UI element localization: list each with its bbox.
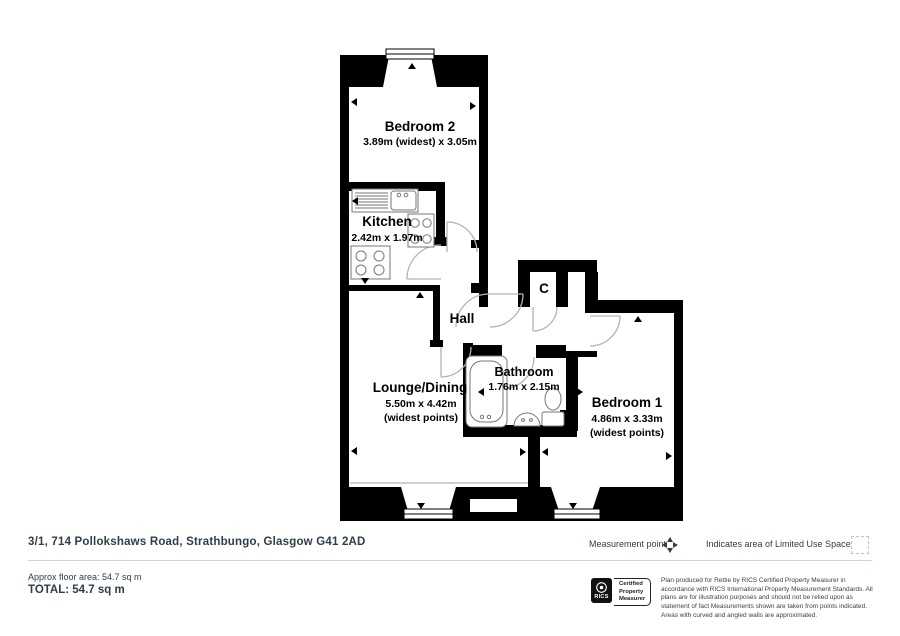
window-icon <box>404 509 453 519</box>
rics-certification-box: Certified Property Measurer <box>614 578 651 606</box>
rics-lion-icon <box>595 581 608 594</box>
limited-use-space-icon <box>851 536 869 554</box>
kitchen-counter-sink-icon <box>352 189 418 212</box>
room-label-hall: Hall <box>450 311 475 326</box>
approx-floor-area: Approx floor area: 54.7 sq m <box>28 572 142 582</box>
room-label-bedroom2: Bedroom 2 <box>385 119 456 134</box>
total-floor-area: TOTAL: 54.7 sq m <box>28 584 125 596</box>
room-dims-bathroom: 1.76m x 2.15m <box>488 381 559 393</box>
room-label-bedroom1: Bedroom 1 <box>592 395 663 410</box>
measurement-point-icon <box>661 536 679 554</box>
rics-brand-text: RICS <box>594 594 608 600</box>
room-label-kitchen: Kitchen <box>362 214 412 229</box>
legend-limited-use-label: Indicates area of Limited Use Space <box>706 539 851 549</box>
rics-logo: RICS Certified Property Measurer <box>591 578 651 606</box>
floorplan-page: Bedroom 2 3.89m (widest) x 3.05m Kitchen… <box>0 0 900 636</box>
toilet-icon <box>542 388 564 426</box>
room-note-bedroom1: (widest points) <box>590 427 664 439</box>
legend-measurement-point-label: Measurement point <box>589 539 666 549</box>
room-label-cupboard: C <box>539 281 549 296</box>
rics-cert-line: Property <box>619 589 645 597</box>
room-dims-lounge: 5.50m x 4.42m <box>385 398 456 410</box>
rics-emblem-icon: RICS <box>591 578 612 603</box>
basin-icon <box>514 413 540 426</box>
rics-cert-line: Measurer <box>619 596 645 604</box>
plan-disclaimer: Plan produced for Rettie by RICS Certifi… <box>661 577 875 620</box>
window-icon <box>554 509 600 519</box>
rics-cert-line: Certified <box>619 581 645 589</box>
room-dims-bedroom1: 4.86m x 3.33m <box>591 413 662 425</box>
property-address: 3/1, 714 Pollokshaws Road, Strathbungo, … <box>28 536 366 548</box>
room-dims-bedroom2: 3.89m (widest) x 3.05m <box>363 136 477 148</box>
room-label-bathroom: Bathroom <box>494 365 553 379</box>
window-icon <box>386 49 434 59</box>
room-note-lounge: (widest points) <box>384 412 458 424</box>
room-dims-kitchen: 2.42m x 1.97m <box>351 232 422 244</box>
appliance-icon <box>351 246 390 279</box>
footer-divider <box>28 560 872 561</box>
room-label-lounge: Lounge/Dining <box>373 380 467 395</box>
